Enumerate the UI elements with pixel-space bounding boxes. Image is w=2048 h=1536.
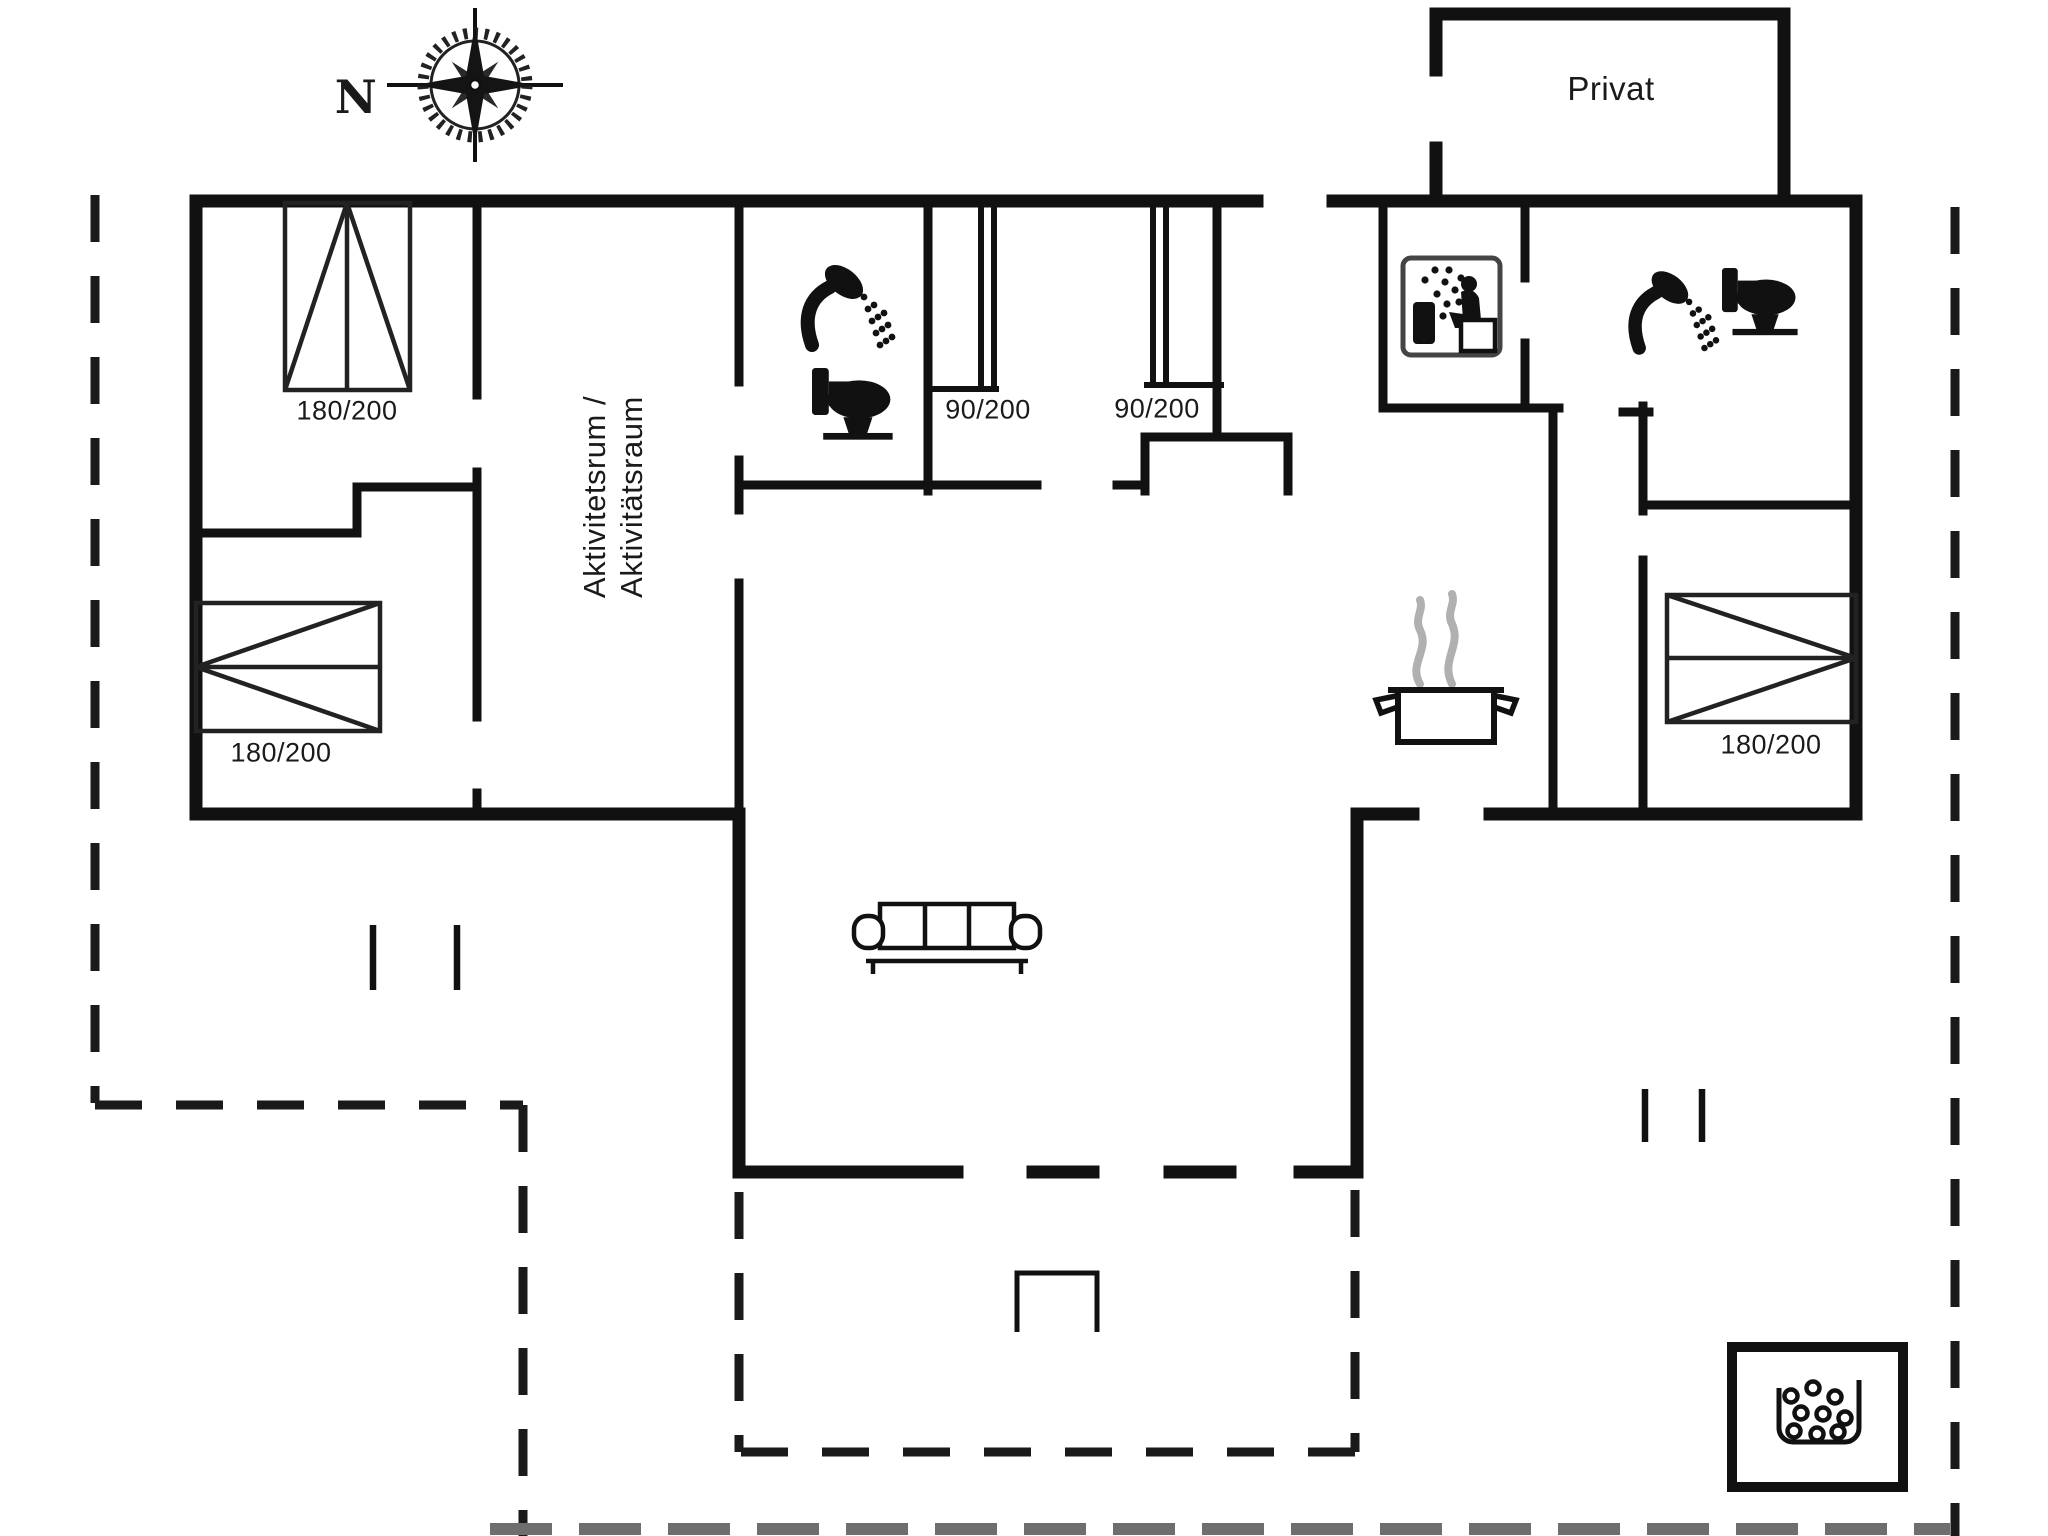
bed-size-label-cabin-left: 90/200 [945,395,1031,426]
bed-right [1667,595,1856,722]
privat-room-label: Privat [1567,70,1654,108]
bed-bottom-left [196,603,380,731]
washing-machine-icon [1732,1347,1903,1487]
terrace-door-posts [373,925,1702,1142]
floorplan-page: N Privat Aktivitetsrum / Aktivitätsraum … [0,0,2048,1536]
interior-walls [196,201,1856,814]
single-bed-symbols [928,203,1221,389]
bed-size-label-right: 180/200 [1720,730,1821,761]
shower-icon-right [1635,265,1719,352]
activity-room-label-line1: Aktivitetsrum / [576,396,613,598]
toilet-icon [812,368,893,440]
compass-north-label: N [335,70,378,124]
sauna-icon [1403,258,1500,355]
bed-size-label-cabin-right: 90/200 [1114,394,1200,425]
bed-size-label-top-left: 180/200 [296,396,397,427]
toilet-icon-right [1722,268,1798,335]
compass-rose-icon [387,8,563,162]
table-icon [1017,1273,1097,1332]
shower-icon [808,258,896,348]
activity-room-label-line2: Aktivitätsraum [613,396,650,598]
activity-room-label: Aktivitetsrum / Aktivitätsraum [576,396,650,598]
bed-top-left [285,203,410,390]
bed-size-label-bottom-left: 180/200 [230,738,331,769]
outer-walls [196,201,1856,1172]
cooking-pot-icon [1376,594,1516,742]
sofa-icon [854,904,1040,974]
